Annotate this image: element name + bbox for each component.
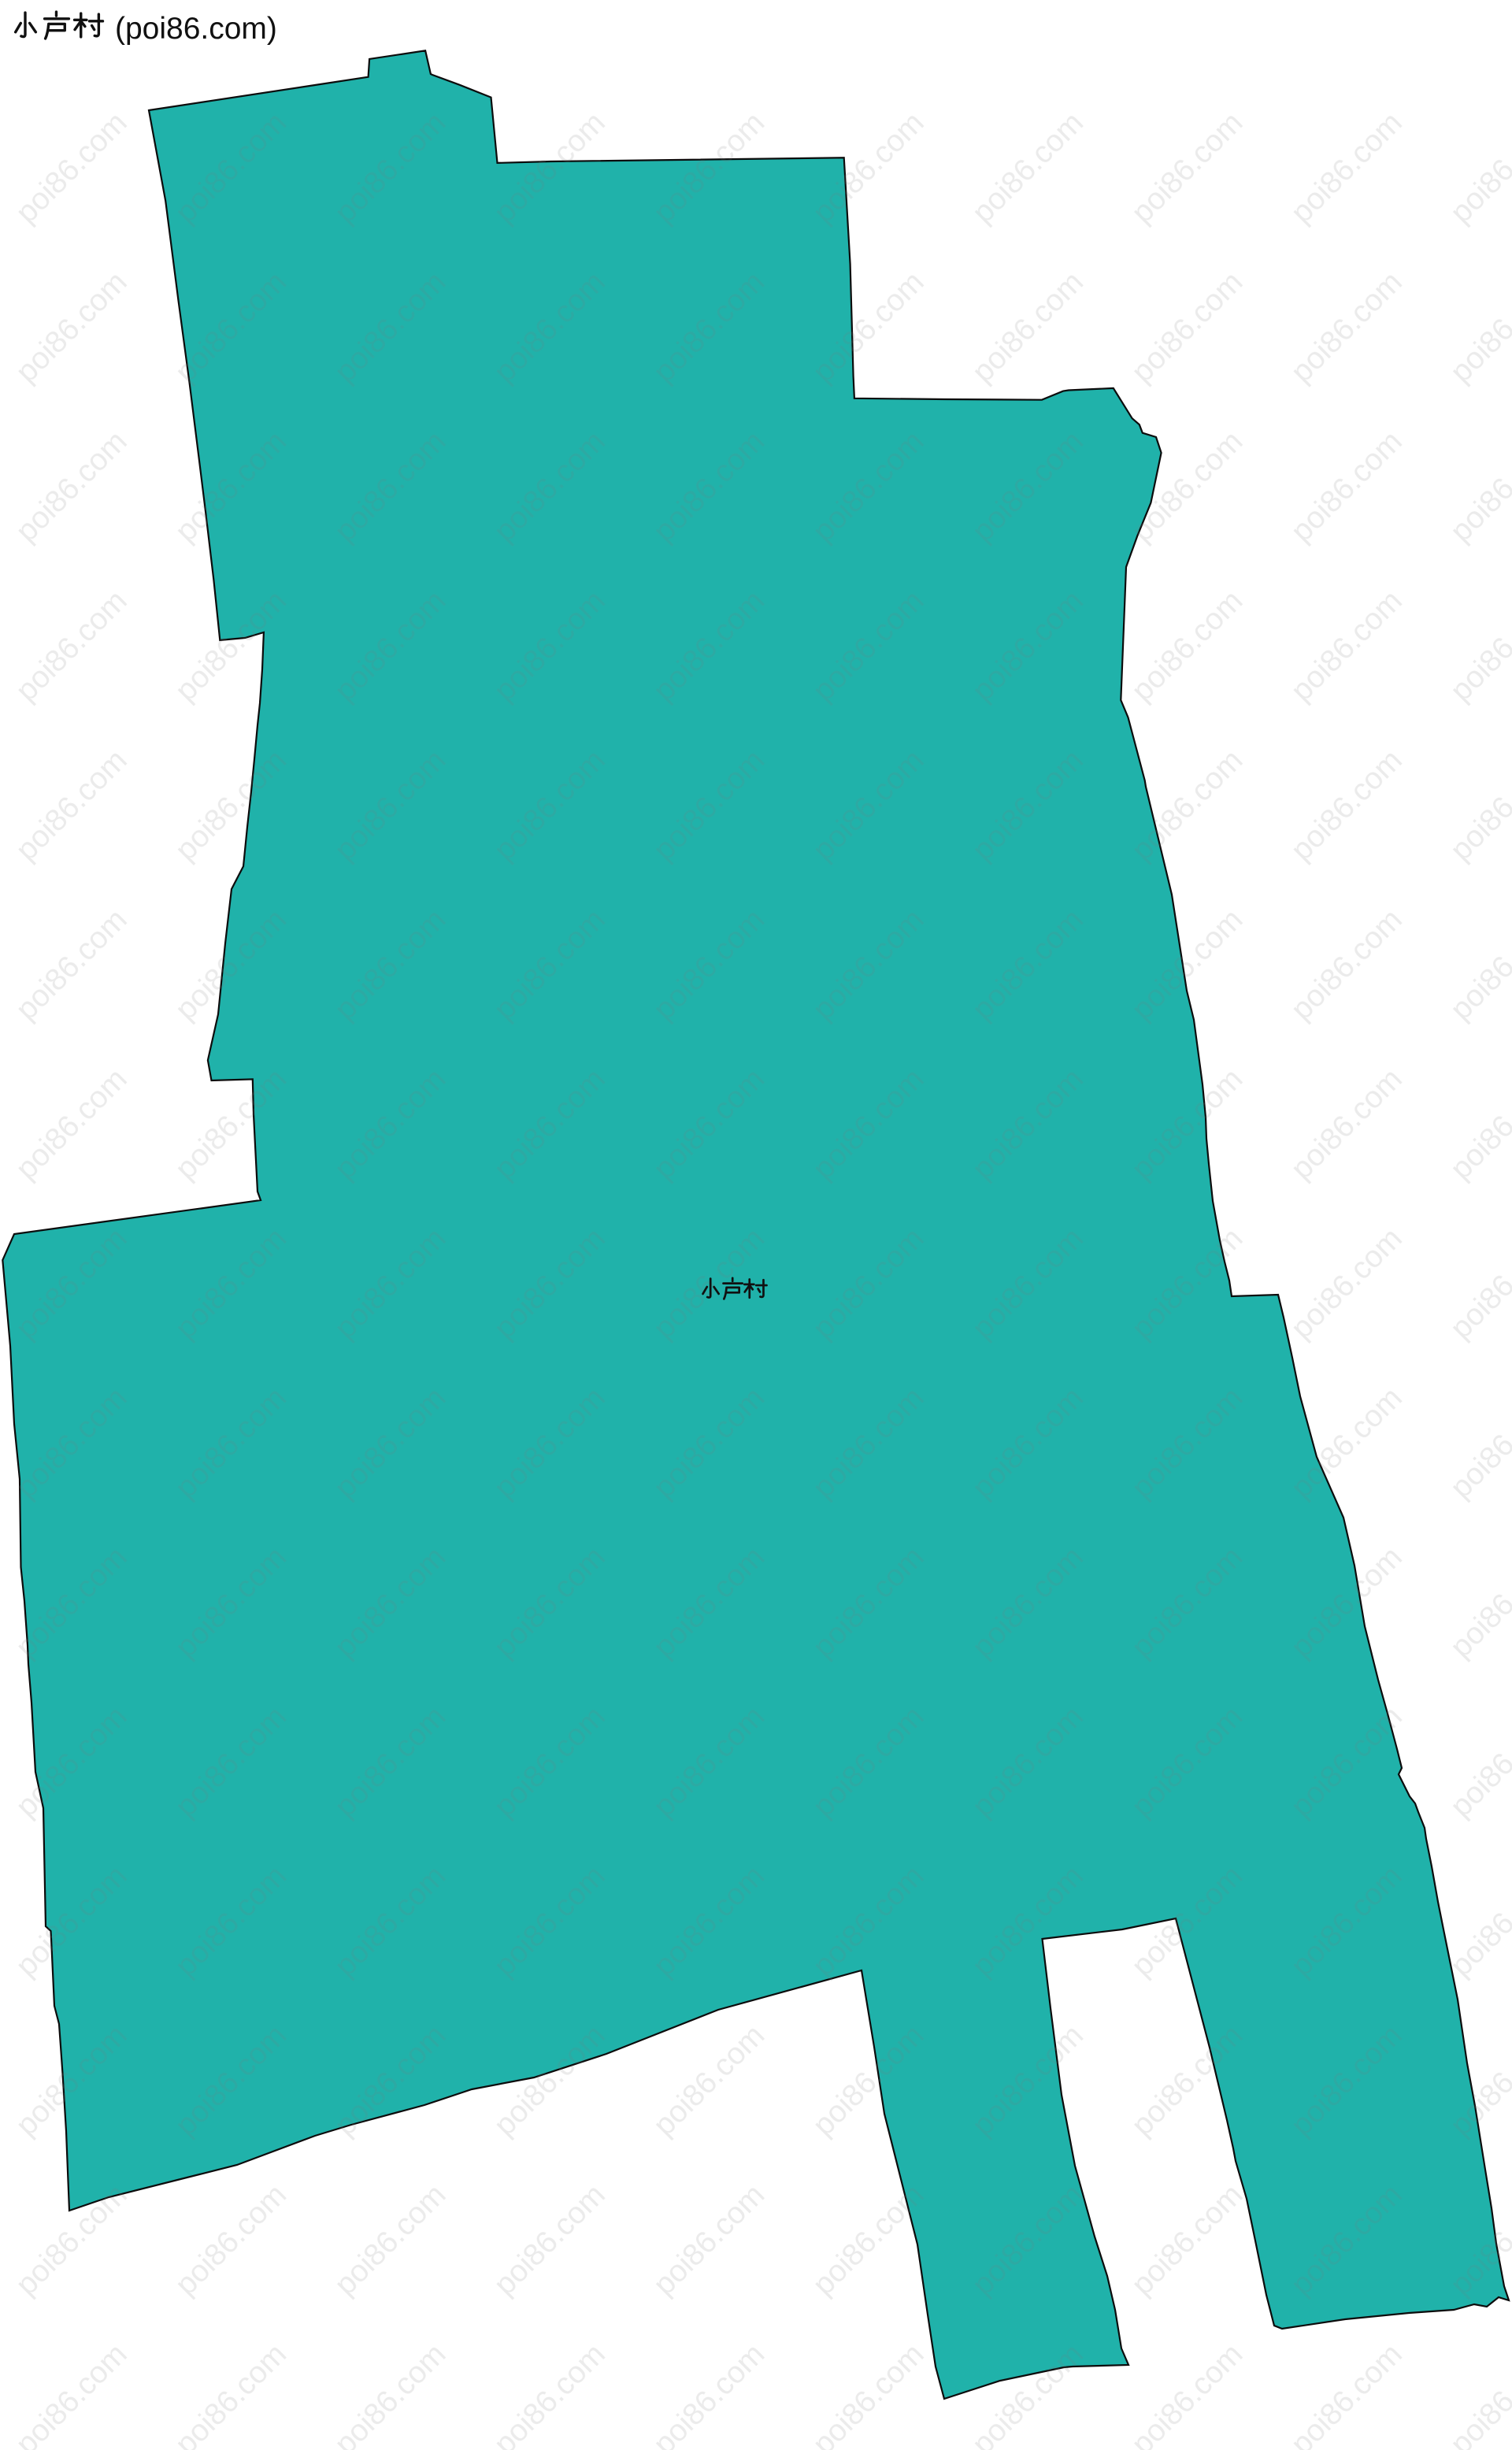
svg-text:(poi86.com): (poi86.com): [115, 12, 277, 46]
